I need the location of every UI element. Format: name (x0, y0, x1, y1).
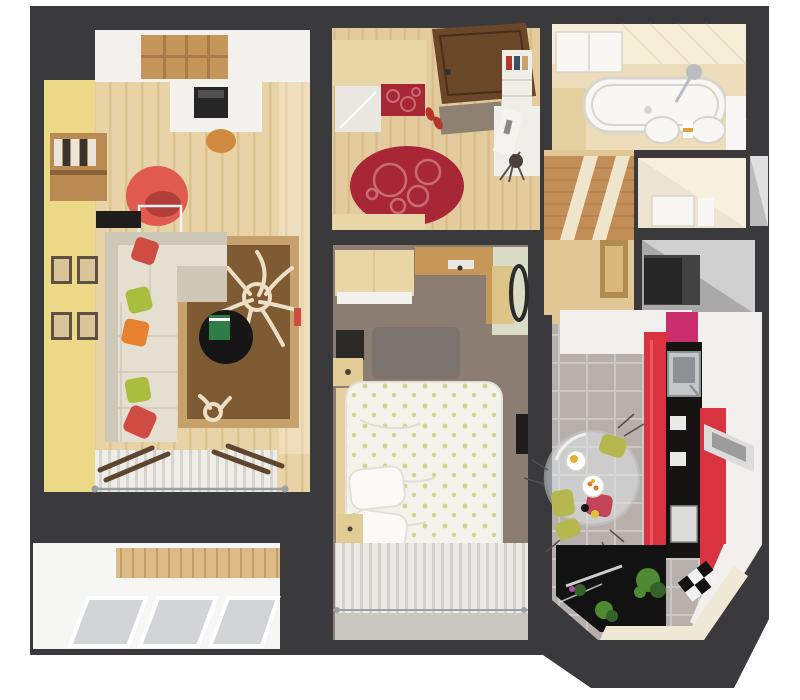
fried-egg-yolk (570, 455, 578, 463)
shelf-item (506, 56, 512, 70)
bathtub-drain (644, 106, 652, 114)
chair-cushion-olive (550, 489, 575, 518)
appliance-door (670, 452, 686, 466)
food-bit (591, 479, 595, 483)
sink (691, 117, 725, 143)
corridor-picture-art (605, 246, 623, 292)
wc-cabinet (652, 196, 694, 226)
wardrobe-top (333, 40, 426, 86)
plant (634, 586, 646, 598)
floor-plan-render (0, 0, 800, 700)
shelf-item (522, 56, 528, 70)
frame-photo (80, 315, 95, 337)
food-bit (594, 486, 599, 491)
wardrobe-front (337, 292, 412, 304)
shelf-item (514, 56, 520, 70)
hall-bench (333, 214, 425, 230)
bed-pillow (348, 465, 406, 510)
red-cabinet-gloss (650, 340, 653, 550)
black-dish (581, 504, 589, 512)
shower-head (686, 64, 702, 80)
room-kitchen (524, 310, 762, 640)
window-sill (335, 613, 528, 640)
flower-accent (569, 586, 575, 592)
appliance-door (670, 416, 686, 430)
bath-ledge (726, 96, 746, 150)
towel-stripe (683, 128, 693, 132)
yellow-dish (591, 510, 599, 518)
bath-tile-strip (552, 88, 586, 150)
balcony-wood-band (116, 548, 280, 578)
wc-unit (698, 198, 714, 226)
plate (582, 475, 604, 497)
doormat (439, 101, 503, 134)
room-corridor (544, 150, 634, 315)
printer-top (198, 90, 224, 98)
door-handle (458, 266, 463, 271)
rod-end-cap (92, 486, 99, 493)
sink (645, 117, 679, 143)
room-storage (642, 240, 755, 314)
storage-black-interior (644, 258, 682, 304)
plant (606, 610, 618, 622)
tv-panel (96, 211, 141, 228)
book-spine (71, 139, 79, 166)
cabinet-side-shade (486, 266, 492, 324)
green-book-stripe (209, 318, 230, 321)
red-cabinet-left-run (644, 332, 668, 558)
nightstand-knob (345, 369, 351, 375)
desk-stool (206, 129, 236, 153)
pink-cabinet-panel (666, 312, 698, 342)
door-handle (445, 69, 451, 75)
nightstand-knob (348, 527, 353, 532)
window-curtains (335, 543, 528, 613)
bookshelf-edge (50, 170, 107, 175)
sofa-backrest-left (105, 232, 118, 442)
rod-end-cap (282, 486, 289, 493)
red-wall-accent (294, 308, 301, 326)
shag-rug (372, 327, 460, 379)
rod-end-cap (334, 607, 340, 613)
frame-photo (54, 259, 69, 281)
cube-shelf-divider-h (141, 55, 228, 58)
floor-plan-stage (0, 0, 800, 700)
plant (650, 582, 666, 598)
sofa-chaise (177, 266, 227, 302)
pillow-orange (121, 318, 151, 348)
tv-stand (336, 330, 364, 360)
pillow-green (124, 376, 152, 404)
room-bedroom (333, 245, 528, 640)
rod-end-cap (521, 607, 527, 613)
sofa-backrest-top (105, 232, 227, 245)
book-spine (80, 139, 87, 166)
room-bathroom (552, 24, 746, 150)
book-spine (63, 139, 70, 166)
frame-photo (80, 259, 95, 281)
frame-photo (54, 315, 69, 337)
book-spine (54, 139, 62, 166)
white-appliance (671, 506, 697, 542)
plant (574, 584, 586, 596)
wall-tv (516, 414, 528, 454)
sink-basin (673, 357, 695, 383)
room-hallway (332, 23, 540, 230)
red-armchair-seat (145, 191, 181, 217)
book-spine (88, 139, 96, 166)
room-living (44, 30, 310, 493)
coat-stand-knob (509, 154, 523, 168)
room-balcony (33, 543, 280, 649)
